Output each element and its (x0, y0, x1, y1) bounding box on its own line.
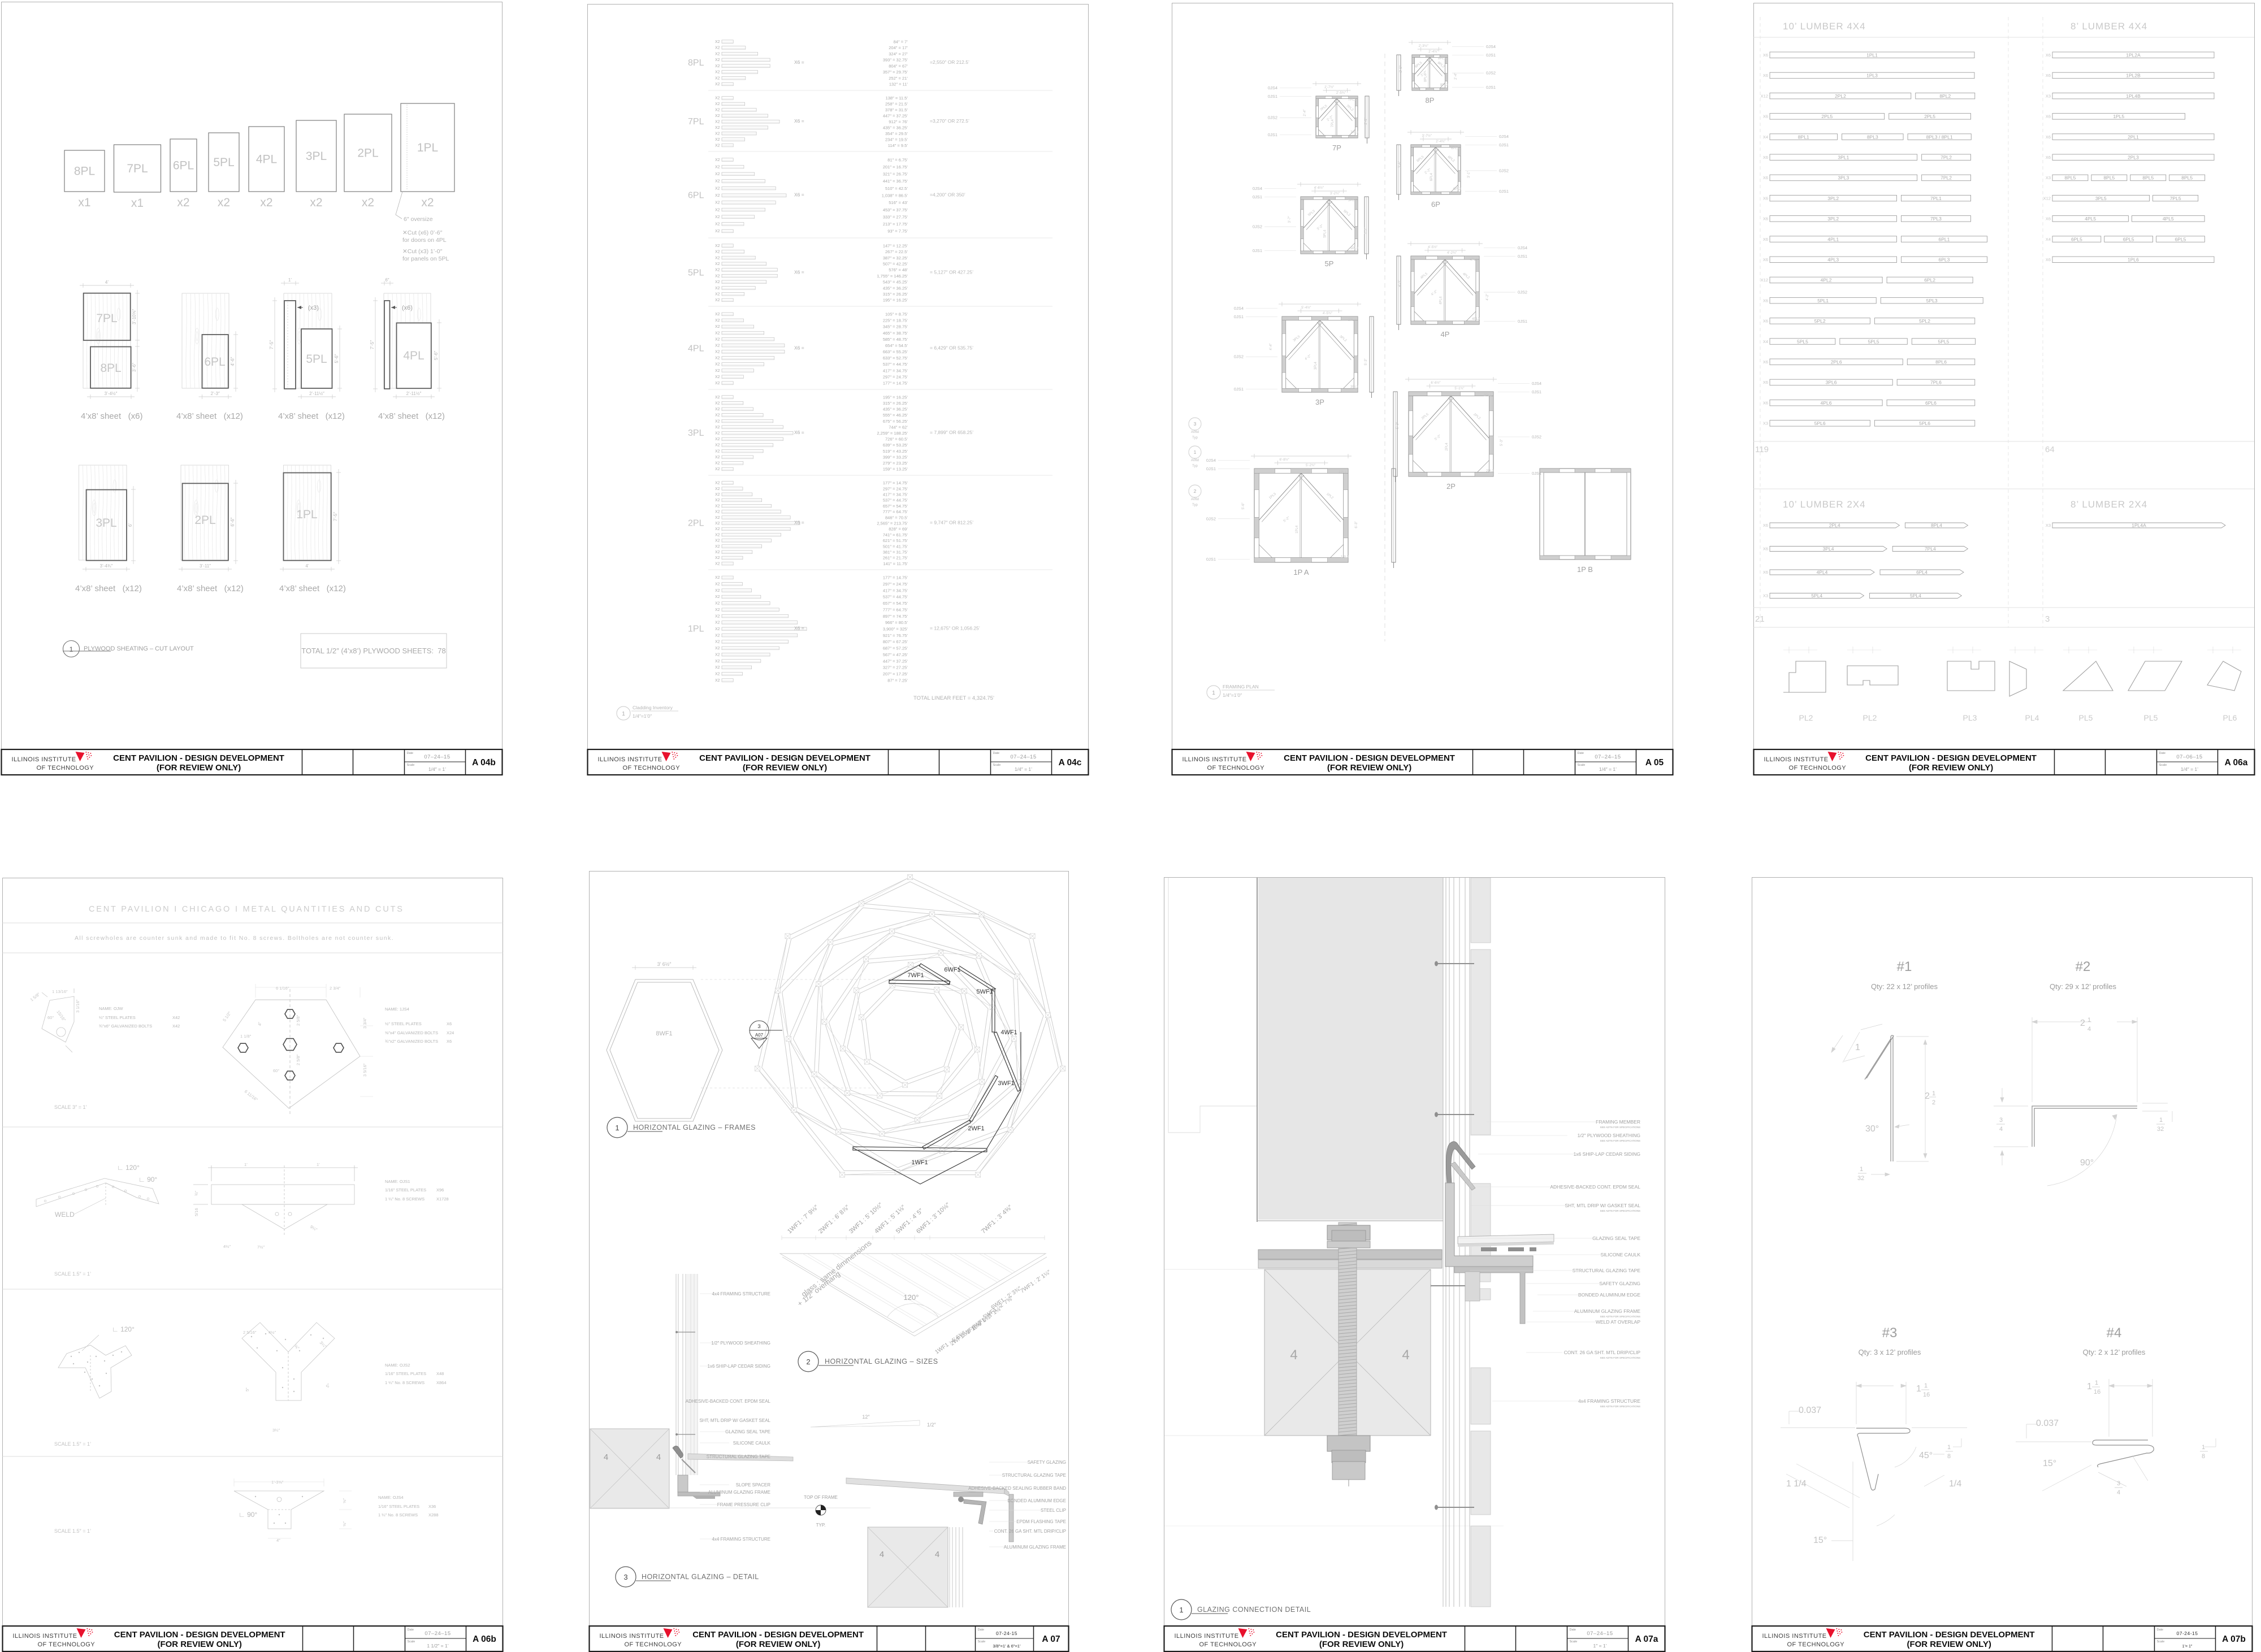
svg-text:A06d: A06d (1191, 431, 1199, 434)
svg-text:0JS1: 0JS1 (1532, 471, 1541, 476)
svg-text:X2: X2 (715, 344, 720, 348)
svg-text:345″ = 28.75’: 345″ = 28.75’ (883, 324, 908, 329)
svg-text:213″ = 17.75’: 213″ = 17.75’ (883, 222, 908, 227)
svg-text:7PL3: 7PL3 (1930, 216, 1942, 222)
svg-text:0JS1: 0JS1 (1234, 387, 1244, 392)
svg-text:NAME: OJS2: NAME: OJS2 (385, 1363, 410, 1368)
svg-text:X3: X3 (2046, 175, 2051, 180)
svg-text:BONDED ALUMINUM EDGE: BONDED ALUMINUM EDGE (1007, 1498, 1066, 1503)
svg-text:585″ = 48.75’: 585″ = 48.75’ (883, 337, 908, 342)
svg-text:A 05: A 05 (1645, 758, 1664, 768)
svg-text:CENT PAVILION - DESIGN DEVELOP: CENT PAVILION - DESIGN DEVELOPMENT (1865, 753, 2037, 763)
svg-text:807″ = 67.25’: 807″ = 67.25’ (883, 639, 908, 644)
svg-text:5’-4½″: 5’-4½″ (1301, 306, 1311, 310)
svg-text:8PL: 8PL (74, 165, 95, 178)
svg-text:1/2″ PLYWOOD SHEATHING: 1/2″ PLYWOOD SHEATHING (711, 1341, 770, 1346)
svg-text:7PL: 7PL (688, 117, 704, 127)
svg-text:297″ = 24.75’: 297″ = 24.75’ (883, 582, 908, 587)
svg-text:7½″: 7½″ (257, 1245, 265, 1250)
svg-text:3: 3 (757, 1024, 760, 1030)
svg-text:3PL2: 3PL2 (1827, 216, 1839, 222)
svg-text:X2: X2 (715, 595, 720, 599)
svg-text:07–24–15: 07–24–15 (425, 1631, 451, 1637)
svg-text:A 04b: A 04b (472, 758, 496, 768)
svg-text:5PL: 5PL (688, 268, 704, 278)
svg-text:Scale: Scale (1570, 1640, 1578, 1644)
svg-text:X2: X2 (715, 396, 720, 400)
svg-text:4: 4 (935, 1550, 939, 1559)
svg-text:12″: 12″ (862, 1414, 870, 1420)
svg-text:6 1/16″: 6 1/16″ (276, 986, 289, 991)
svg-text:4PL: 4PL (688, 344, 704, 354)
svg-text:15°: 15° (2043, 1459, 2056, 1468)
svg-text:16: 16 (2094, 1389, 2100, 1395)
svg-text:2PL1: 2PL1 (1484, 394, 1492, 397)
svg-text:ALUMINUM GLAZING FRAME: ALUMINUM GLAZING FRAME (708, 1490, 770, 1495)
svg-text:X6: X6 (1763, 257, 1768, 262)
svg-text:X2: X2 (715, 262, 720, 266)
svg-text:60°: 60° (273, 1068, 279, 1073)
svg-text:ILLINOIS INSTITUTE: ILLINOIS INSTITUTE (12, 756, 76, 763)
svg-text:8P: 8P (1426, 96, 1435, 105)
svg-text:3P: 3P (1315, 398, 1324, 406)
svg-text:ILLINOIS INSTITUTE: ILLINOIS INSTITUTE (13, 1633, 77, 1640)
svg-text:3,900″ = 325’: 3,900″ = 325’ (883, 627, 908, 632)
svg-text:0.037: 0.037 (1799, 1406, 1821, 1415)
svg-text:1 ¼″ No. 8 SCREWS: 1 ¼″ No. 8 SCREWS (385, 1196, 425, 1202)
svg-text:Date: Date (1578, 752, 1584, 755)
svg-text:105″ = 8.75’: 105″ = 8.75’ (885, 312, 908, 317)
svg-text:2,565″ = 213.75’: 2,565″ = 213.75’ (877, 521, 908, 526)
svg-text:2’-7½″: 2’-7½″ (1324, 85, 1335, 89)
svg-text:6PL6: 6PL6 (1925, 400, 1937, 406)
svg-text:Scale: Scale (1578, 764, 1586, 767)
svg-text:4’: 4’ (305, 563, 309, 569)
svg-text:X24: X24 (447, 1030, 454, 1035)
svg-text:2’-5″: 2’-5″ (1400, 65, 1403, 72)
svg-text:X288: X288 (428, 1512, 439, 1517)
svg-text:267″ = 22.5’: 267″ = 22.5’ (885, 249, 908, 254)
svg-text:X6: X6 (2046, 155, 2051, 160)
svg-text:3PL5: 3PL5 (2095, 196, 2107, 201)
svg-text:315″ = 26.25’: 315″ = 26.25’ (883, 292, 908, 297)
svg-text:6’-6½″: 6’-6½″ (1431, 381, 1441, 385)
svg-text:2PL3: 2PL3 (2128, 155, 2139, 161)
svg-text:X2: X2 (715, 256, 720, 260)
svg-text:X2: X2 (715, 462, 720, 466)
svg-text:7PL4: 7PL4 (1925, 546, 1936, 552)
svg-text:(FOR REVIEW ONLY): (FOR REVIEW ONLY) (157, 1640, 241, 1649)
svg-text:6″ oversize: 6″ oversize (404, 216, 433, 223)
svg-text:1PL: 1PL (417, 141, 438, 154)
svg-text:STRUCTURAL GLAZING TAPE: STRUCTURAL GLAZING TAPE (1002, 1473, 1066, 1478)
svg-text:4PL2: 4PL2 (1821, 277, 1832, 283)
svg-text:45°: 45° (1919, 1451, 1933, 1460)
svg-text:x2: x2 (421, 196, 434, 209)
svg-text:567″ = 47.25’: 567″ = 47.25’ (883, 652, 908, 657)
svg-text:∟ 90°: ∟ 90° (239, 1511, 257, 1519)
svg-text:7’-5″: 7’-5″ (269, 340, 274, 349)
svg-text:X2: X2 (715, 444, 720, 448)
svg-text:Typ: Typ (1192, 465, 1198, 468)
svg-text:3PL1: 3PL1 (1348, 319, 1357, 322)
svg-text:4’x8’ sheet (x12): 4’x8’ sheet (x12) (279, 584, 346, 593)
svg-text:1PL4B: 1PL4B (2126, 93, 2141, 99)
svg-text:5’-1¾″: 5’-1¾″ (1454, 387, 1465, 391)
svg-text:381″ = 31.75’: 381″ = 31.75’ (883, 550, 908, 555)
svg-text:OF TECHNOLOGY: OF TECHNOLOGY (1789, 765, 1847, 771)
svg-text:0JS1: 0JS1 (1486, 85, 1496, 90)
svg-text:6WF1: 6WF1 (944, 966, 960, 973)
svg-text:1x6 SHIP-LAP CEDAR SIDING: 1x6 SHIP-LAP CEDAR SIDING (708, 1364, 770, 1369)
svg-text:X6 =: X6 = (794, 520, 804, 526)
svg-text:X2: X2 (715, 194, 720, 198)
svg-text:SAFETY GLAZING: SAFETY GLAZING (1599, 1281, 1640, 1286)
svg-text:1: 1 (70, 645, 73, 653)
svg-text:1/4″=1’0″: 1/4″=1’0″ (633, 713, 652, 719)
svg-text:4’: 4’ (105, 280, 109, 285)
svg-text:07–24–15: 07–24–15 (1010, 754, 1036, 760)
svg-text:5PL: 5PL (306, 353, 327, 366)
svg-text:X2: X2 (715, 456, 720, 459)
svg-text:X2: X2 (715, 640, 720, 644)
svg-text:1 13/16″: 1 13/16″ (52, 989, 68, 994)
svg-text:87″ = 7.25’: 87″ = 7.25’ (887, 678, 908, 683)
svg-text:639″ = 53.25’: 639″ = 53.25’ (883, 443, 908, 448)
svg-text:5/16: 5/16 (194, 1208, 199, 1216)
svg-text:0JS1: 0JS1 (1206, 466, 1216, 471)
svg-text:321″ = 26.75’: 321″ = 26.75’ (883, 172, 908, 177)
svg-text:621″ = 51.75’: 621″ = 51.75’ (883, 538, 908, 543)
svg-text:X2: X2 (715, 437, 720, 441)
svg-text:3¼″: 3¼″ (272, 1428, 280, 1433)
svg-text:X2: X2 (715, 589, 720, 593)
svg-text:Date: Date (1570, 1628, 1576, 1632)
svg-text:TOTAL LINEAR FEET = 4,324.75’: TOTAL LINEAR FEET = 4,324.75’ (913, 695, 994, 701)
svg-text:2’-11½″: 2’-11½″ (309, 391, 324, 396)
svg-text:84″ = 7’: 84″ = 7’ (894, 39, 908, 44)
svg-text:X2: X2 (715, 621, 720, 625)
svg-text:OF TECHNOLOGY: OF TECHNOLOGY (1199, 1641, 1257, 1648)
svg-text:966″ = 80.5’: 966″ = 80.5’ (885, 620, 908, 625)
svg-text:4’-5¾″: 4’-5¾″ (1323, 312, 1333, 315)
svg-text:⅝″: ⅝″ (342, 1521, 347, 1527)
svg-text:1/16″ STEEL PLATES: 1/16″ STEEL PLATES (378, 1504, 419, 1509)
svg-text:2’-3″: 2’-3″ (1365, 117, 1368, 124)
svg-text:1/2″ PLYWOOD SHEATHING: 1/2″ PLYWOOD SHEATHING (1578, 1133, 1640, 1138)
svg-text:X2: X2 (715, 313, 720, 316)
svg-text:0JS1: 0JS1 (1532, 389, 1541, 394)
svg-text:X2: X2 (715, 208, 720, 212)
svg-text:A 07a: A 07a (1635, 1634, 1658, 1644)
svg-text:4PL1: 4PL1 (1470, 258, 1478, 262)
svg-text:A 06a: A 06a (2225, 758, 2248, 768)
svg-text:177″ = 14.75’: 177″ = 14.75’ (883, 480, 908, 485)
svg-text:4’-6″: 4’-6″ (230, 357, 235, 366)
svg-text:3’-6″: 3’-6″ (1398, 161, 1402, 168)
svg-text:4x4 FRAMING STRUCTURE: 4x4 FRAMING STRUCTURE (712, 1537, 770, 1542)
svg-text:3’-4½″: 3’-4½″ (105, 391, 118, 396)
svg-text:X2: X2 (715, 539, 720, 543)
svg-text:7PL: 7PL (96, 312, 117, 325)
svg-text:Qty: 22 x 12’ profiles: Qty: 22 x 12’ profiles (1871, 982, 1938, 991)
svg-text:STRUCTURAL GLAZING TAPE: STRUCTURAL GLAZING TAPE (1573, 1268, 1641, 1273)
svg-text:OF TECHNOLOGY: OF TECHNOLOGY (1207, 765, 1265, 771)
svg-text:X6: X6 (1763, 359, 1768, 365)
svg-text:1/4″ = 1’: 1/4″ = 1’ (1599, 766, 1617, 772)
svg-text:X2: X2 (715, 562, 720, 566)
svg-text:2’-5¾″: 2’-5¾″ (1336, 92, 1346, 95)
svg-text:3’-2¾″: 3’-2¾″ (1330, 192, 1340, 196)
svg-text:Scale: Scale (978, 1640, 986, 1644)
svg-text:261″ = 21.75’: 261″ = 21.75’ (883, 556, 908, 561)
svg-text:8: 8 (1947, 1453, 1951, 1460)
svg-text:∟ 90°: ∟ 90° (138, 1176, 157, 1183)
svg-text:4x4 FRAMING STRUCTURE: 4x4 FRAMING STRUCTURE (712, 1291, 770, 1297)
svg-text:2: 2 (1932, 1099, 1935, 1106)
svg-text:663″ = 55.25’: 663″ = 55.25’ (883, 349, 908, 354)
svg-text:X2: X2 (715, 244, 720, 248)
svg-text:X2: X2 (715, 407, 720, 411)
svg-text:X2: X2 (715, 550, 720, 554)
svg-text:Scale: Scale (993, 764, 1001, 767)
svg-text:10’ LUMBER 2X4: 10’ LUMBER 2X4 (1783, 499, 1866, 510)
svg-text:2PL5: 2PL5 (1821, 114, 1833, 119)
svg-text:675″ = 56.25’: 675″ = 56.25’ (883, 419, 908, 424)
svg-text:5’-6″: 5’-6″ (1242, 502, 1245, 509)
svg-text:6PL3: 6PL3 (1453, 188, 1462, 191)
svg-text:X2: X2 (715, 250, 720, 254)
svg-text:X6: X6 (1763, 380, 1768, 385)
svg-text:2’-11½″: 2’-11½″ (406, 391, 422, 396)
svg-text:2: 2 (2080, 1018, 2085, 1028)
svg-text:X2: X2 (715, 576, 720, 580)
svg-text:TYP.: TYP. (816, 1523, 826, 1528)
svg-text:1: 1 (1860, 1166, 1863, 1173)
svg-text:3’-7″: 3’-7″ (1288, 215, 1292, 223)
svg-text:2’-3½″: 2’-3½″ (1419, 44, 1429, 48)
svg-text:Date: Date (993, 752, 1000, 755)
svg-text:8PL4: 8PL4 (1931, 523, 1942, 528)
svg-text:CONT. 26 GA SHT. MTL DRIP/CLIP: CONT. 26 GA SHT. MTL DRIP/CLIP (994, 1529, 1066, 1534)
svg-text:X2: X2 (715, 516, 720, 520)
svg-text:X12: X12 (2043, 196, 2051, 201)
svg-text:3PL1: 3PL1 (1838, 155, 1849, 161)
svg-text:0JS2: 0JS2 (1499, 168, 1509, 173)
svg-text:0JS2: 0JS2 (1253, 224, 1262, 229)
svg-text:½″ STEEL PLATES: ½″ STEEL PLATES (385, 1021, 422, 1026)
svg-text:687″ = 57.25’: 687″ = 57.25’ (883, 646, 908, 651)
svg-text:1: 1 (2087, 1382, 2092, 1391)
svg-text:8PL5: 8PL5 (2181, 175, 2193, 181)
svg-text:6’-6″: 6’-6″ (230, 517, 235, 526)
svg-text:7PL3: 7PL3 (1350, 131, 1359, 135)
svg-text:X2: X2 (715, 46, 720, 50)
svg-text:6PL1: 6PL1 (1451, 147, 1459, 150)
svg-text:5WF1: 5WF1 (976, 988, 993, 995)
svg-text:654″ = 54.5’: 654″ = 54.5’ (885, 343, 908, 348)
svg-text:CENT PAVILION - DESIGN DEVELOP: CENT PAVILION - DESIGN DEVELOPMENT (113, 753, 284, 763)
svg-text:0JS2: 0JS2 (1268, 115, 1277, 120)
svg-text:X6 =: X6 = (794, 345, 804, 351)
svg-text:3 1/16″: 3 1/16″ (75, 999, 80, 1013)
svg-text:1: 1 (1947, 1444, 1951, 1451)
svg-text:2’-4″: 2’-4″ (1303, 109, 1307, 116)
svg-text:=3,270″ OR 272.5’: =3,270″ OR 272.5’ (930, 118, 969, 124)
svg-text:417″ = 34.75’: 417″ = 34.75’ (883, 368, 908, 373)
svg-text:8PL3 / 8PL1: 8PL3 / 8PL1 (1926, 134, 1953, 140)
svg-text:X6 =: X6 = (794, 192, 804, 198)
svg-text:Date: Date (408, 1628, 414, 1632)
svg-text:X864: X864 (436, 1380, 447, 1385)
svg-text:STRUCTURAL GLAZING TAPE: STRUCTURAL GLAZING TAPE (707, 1454, 770, 1459)
svg-text:543″ = 45.25’: 543″ = 45.25’ (883, 280, 908, 285)
svg-text:X1728: X1728 (436, 1196, 449, 1202)
svg-text:¼″ STEEL PLATES: ¼″ STEEL PLATES (99, 1015, 136, 1020)
svg-text:x2: x2 (362, 196, 374, 209)
svg-text:#2: #2 (2076, 959, 2091, 974)
svg-text:537″ = 44.75’: 537″ = 44.75’ (883, 362, 908, 367)
svg-text:SLOPE SPACER: SLOPE SPACER (736, 1482, 770, 1488)
svg-text:6P: 6P (1431, 200, 1440, 209)
svg-text:NAME: OJW: NAME: OJW (99, 1006, 123, 1011)
svg-text:3/8″=1’ & 6″=1’: 3/8″=1’ & 6″=1’ (993, 1644, 1021, 1649)
svg-text:X2: X2 (715, 187, 720, 190)
svg-text:07-24-15: 07-24-15 (2176, 1631, 2198, 1636)
svg-text:1/16″ STEEL PLATES: 1/16″ STEEL PLATES (385, 1187, 426, 1193)
svg-text:X96: X96 (436, 1187, 444, 1193)
svg-text:CENT PAVILION - DESIGN DEVELOP: CENT PAVILION - DESIGN DEVELOPMENT (1284, 753, 1455, 763)
svg-text:8: 8 (2202, 1453, 2205, 1460)
svg-text:X6 =: X6 = (794, 118, 804, 124)
svg-text:07-24-15: 07-24-15 (996, 1631, 1017, 1636)
svg-text:4’x8’ sheet (x12): 4’x8’ sheet (x12) (75, 584, 142, 593)
svg-text:5PL: 5PL (213, 156, 234, 169)
svg-text:4½″: 4½″ (268, 1330, 276, 1335)
svg-text:X2: X2 (715, 97, 720, 101)
svg-text:1/16″ STEEL PLATES: 1/16″ STEEL PLATES (385, 1371, 426, 1376)
svg-text:SEE ADTN FOR SPECIFICATIONS: SEE ADTN FOR SPECIFICATIONS (1600, 1315, 1640, 1318)
svg-text:4PL: 4PL (403, 349, 424, 362)
svg-text:X6 =: X6 = (794, 270, 804, 275)
svg-text:7PL5: 7PL5 (2170, 196, 2181, 201)
svg-text:8PL1: 8PL1 (1798, 134, 1809, 140)
svg-text:5PL6: 5PL6 (1814, 420, 1826, 426)
svg-text:1,755″ = 146.25’: 1,755″ = 146.25’ (877, 274, 908, 279)
svg-text:X2: X2 (715, 158, 720, 162)
svg-text:2’-3″: 2’-3″ (211, 391, 220, 396)
svg-text:1: 1 (2159, 1117, 2163, 1124)
svg-text:4: 4 (656, 1452, 661, 1462)
svg-text:1PL: 1PL (296, 508, 317, 521)
svg-text:CONT. 26 GA SHT. MTL DRIP/CLIP: CONT. 26 GA SHT. MTL DRIP/CLIP (1564, 1350, 1641, 1355)
svg-text:7PL1: 7PL1 (1930, 196, 1942, 201)
svg-text:0JS4: 0JS4 (1234, 306, 1244, 311)
svg-text:X6: X6 (447, 1039, 452, 1044)
svg-text:GLAZING SEAL TAPE: GLAZING SEAL TAPE (725, 1429, 770, 1434)
svg-text:5’-3″: 5’-3″ (1365, 358, 1368, 365)
svg-text:4’-2¾″: 4’-2¾″ (1447, 252, 1457, 255)
svg-text:X2: X2 (715, 614, 720, 618)
svg-text:X3: X3 (1763, 593, 1768, 599)
svg-text:846″ = 70.5’: 846″ = 70.5’ (885, 515, 908, 520)
svg-text:X2: X2 (715, 522, 720, 526)
svg-text:60°: 60° (47, 1015, 54, 1020)
svg-text:16: 16 (1923, 1391, 1930, 1398)
svg-text:ILLINOIS INSTITUTE: ILLINOIS INSTITUTE (1762, 1633, 1827, 1640)
svg-text:1PL3: 1PL3 (1341, 556, 1349, 559)
svg-text:ILLINOIS INSTITUTE: ILLINOIS INSTITUTE (600, 1633, 664, 1640)
svg-text:1/4″=1’0″: 1/4″=1’0″ (1223, 692, 1242, 698)
svg-text:= 7,899″ OR 658.25’: = 7,899″ OR 658.25’ (930, 430, 973, 435)
svg-text:X2: X2 (715, 215, 720, 219)
svg-text:X4: X4 (1763, 135, 1768, 140)
svg-text:6PL5: 6PL5 (2071, 236, 2082, 242)
svg-text:7PL6: 7PL6 (1930, 380, 1942, 385)
svg-text:507″ = 42.25’: 507″ = 42.25’ (883, 261, 908, 266)
svg-text:X2: X2 (715, 83, 720, 86)
svg-text:ALUMINUM GLAZING FRAME: ALUMINUM GLAZING FRAME (1574, 1308, 1640, 1314)
svg-text:X2: X2 (715, 180, 720, 184)
svg-text:30°: 30° (1865, 1124, 1879, 1134)
svg-text:393″ = 32.75’: 393″ = 32.75’ (883, 58, 908, 63)
svg-text:5PL2: 5PL2 (1814, 318, 1826, 324)
svg-text:⅝″: ⅝″ (342, 1498, 347, 1503)
svg-text:81″ = 6.75’: 81″ = 6.75’ (887, 157, 908, 162)
svg-text:6PL1: 6PL1 (1939, 236, 1950, 242)
svg-text:X2: X2 (715, 120, 720, 124)
svg-text:8PL1: 8PL1 (1438, 57, 1446, 60)
svg-text:= 9,747″ OR 812.25’: = 9,747″ OR 812.25’ (930, 520, 973, 526)
svg-text:✕Cut (x6) 0’-6″: ✕Cut (x6) 0’-6″ (402, 229, 443, 236)
svg-text:4’x8’ sheet (x6): 4’x8’ sheet (x6) (81, 411, 143, 421)
svg-text:GLAZING SEAL TAPE: GLAZING SEAL TAPE (1592, 1235, 1640, 1241)
svg-text:X3: X3 (1763, 421, 1768, 426)
svg-text:(FOR REVIEW ONLY): (FOR REVIEW ONLY) (743, 763, 827, 773)
svg-text:Qty: 29 x 12’ profiles: Qty: 29 x 12’ profiles (2050, 982, 2117, 991)
svg-text:2’-4¾″: 2’-4¾″ (1436, 140, 1446, 144)
svg-text:Cladding Inventory: Cladding Inventory (633, 705, 673, 710)
svg-text:0JS1: 0JS1 (1206, 557, 1216, 562)
svg-text:3: 3 (2117, 1480, 2120, 1487)
svg-text:4’x8’ sheet (x12): 4’x8’ sheet (x12) (177, 584, 244, 593)
svg-text:X2: X2 (715, 319, 720, 323)
svg-text:10’ LUMBER 4X4: 10’ LUMBER 4X4 (1783, 21, 1866, 32)
svg-text:PL2: PL2 (1863, 713, 1877, 722)
svg-text:2PL4: 2PL4 (1445, 443, 1449, 451)
svg-text:8PL6: 8PL6 (1935, 359, 1947, 365)
svg-text:1PL4: 1PL4 (1296, 525, 1299, 534)
svg-text:X2: X2 (715, 487, 720, 491)
svg-text:1’: 1’ (244, 1162, 248, 1167)
svg-text:X2: X2 (715, 76, 720, 80)
svg-text:X6: X6 (2046, 114, 2051, 119)
svg-text:204″ = 17’: 204″ = 17’ (889, 45, 908, 50)
svg-text:333″ = 27.75’: 333″ = 27.75’ (883, 214, 908, 219)
svg-text:(FOR REVIEW ONLY): (FOR REVIEW ONLY) (157, 763, 241, 773)
svg-text:3PL: 3PL (96, 517, 116, 530)
svg-text:X12: X12 (1761, 277, 1768, 283)
svg-text:3’-2″: 3’-2″ (1365, 227, 1368, 235)
svg-text:ILLINOIS INSTITUTE: ILLINOIS INSTITUTE (598, 756, 662, 763)
svg-text:4″: 4″ (257, 1022, 262, 1026)
svg-text:177″ = 14.75’: 177″ = 14.75’ (883, 575, 908, 580)
svg-text:X2: X2 (715, 467, 720, 471)
svg-text:5PL4: 5PL4 (1910, 593, 1921, 599)
svg-text:x2: x2 (260, 196, 272, 209)
svg-text:X2: X2 (715, 556, 720, 560)
svg-text:4’x8’ sheet (x12): 4’x8’ sheet (x12) (378, 411, 445, 421)
